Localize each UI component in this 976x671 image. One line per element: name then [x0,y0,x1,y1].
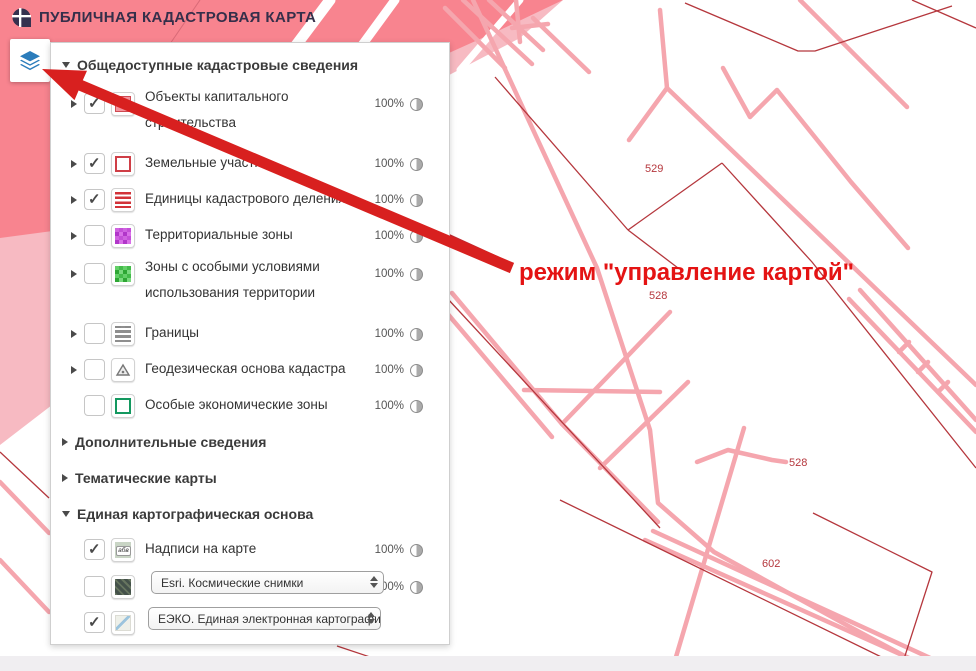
expand-arrow-icon[interactable] [71,366,77,374]
layer-row-cadastral-division: Единицы кадастрового деления 100% [51,182,449,218]
layer-checkbox[interactable] [84,612,105,633]
section-public-cadastral-info[interactable]: Общедоступные кадастровые сведения [51,47,449,83]
layer-checkbox[interactable] [84,189,105,210]
expand-arrow-icon[interactable] [71,232,77,240]
app-title: ПУБЛИЧНАЯ КАДАСТРОВАЯ КАРТА [39,9,316,26]
opacity-value: 100% [375,194,404,206]
basemap-select[interactable]: ЕЭКО. Единая электронная картографичес [148,607,381,630]
basemap-select[interactable]: Esri. Космические снимки [151,571,384,594]
layer-checkbox[interactable] [84,576,105,597]
geodetic-basis-icon [111,358,135,382]
layer-checkbox[interactable] [84,539,105,560]
opacity-toggle-icon[interactable] [410,581,423,594]
opacity-toggle-icon[interactable] [410,400,423,413]
opacity-toggle-icon[interactable] [410,328,423,341]
layer-row-special-conditions-zones: Зоны с особыми условиями использования т… [51,256,449,292]
select-stepper-icon [370,576,378,588]
rosreestr-logo-icon [12,8,31,27]
opacity-value: 100% [375,328,404,340]
opacity-toggle-icon[interactable] [410,544,423,557]
section-additional-info[interactable]: Дополнительные сведения [51,424,449,460]
expand-arrow-icon[interactable] [71,196,77,204]
layer-row-territorial-zones: Территориальные зоны 100% [51,218,449,254]
layer-row-base-map: ЕЭКО. Единая электронная картографичес [51,605,449,641]
layers-icon [17,48,43,74]
layer-checkbox[interactable] [84,93,105,114]
opacity-value: 100% [375,364,404,376]
annotation-text: режим "управление картой" [519,259,854,287]
chevron-down-icon [62,62,70,68]
section-thematic-maps[interactable]: Тематические карты [51,460,449,496]
layer-row-map-labels: абв Надписи на карте 100% [51,532,449,568]
opacity-toggle-icon[interactable] [410,194,423,207]
chevron-right-icon [62,474,68,482]
layers-panel: Общедоступные кадастровые сведения Объек… [50,42,450,645]
land-parcels-icon [111,152,135,176]
layer-row-borders: Границы 100% [51,316,449,352]
construction-objects-icon [111,92,135,116]
expand-arrow-icon[interactable] [71,270,77,278]
opacity-toggle-icon[interactable] [410,98,423,111]
map-labels-icon: абв [111,538,135,562]
chevron-down-icon [62,511,70,517]
special-conditions-zones-icon [111,262,135,286]
special-economic-zones-icon [111,394,135,418]
layer-row-geodetic-basis: Геодезическая основа кадастра 100% [51,352,449,388]
layer-row-satellite-imagery: 100% Esri. Космические снимки [51,569,449,605]
base-map-icon [111,611,135,635]
cadastral-division-icon [111,188,135,212]
cadastral-number-label: 602 [762,558,780,570]
expand-arrow-icon[interactable] [71,330,77,338]
layer-checkbox[interactable] [84,225,105,246]
opacity-value: 100% [375,158,404,170]
cadastral-number-label: 529 [645,163,663,175]
opacity-toggle-icon[interactable] [410,230,423,243]
layer-checkbox[interactable] [84,395,105,416]
expand-arrow-icon[interactable] [71,100,77,108]
cadastral-number-label: 528 [649,290,667,302]
layer-checkbox[interactable] [84,153,105,174]
map-bottom-area [0,656,976,671]
section-unified-cartographic-basis[interactable]: Единая картографическая основа [51,496,449,532]
opacity-value: 100% [375,230,404,242]
opacity-value: 100% [375,400,404,412]
app-header: ПУБЛИЧНАЯ КАДАСТРОВАЯ КАРТА [12,8,316,27]
map-application: 529 528 528 602 ПУБЛИЧНАЯ КАДАСТРОВАЯ КА… [0,0,976,671]
opacity-toggle-icon[interactable] [410,158,423,171]
cadastral-number-label: 528 [789,457,807,469]
layer-row-land-parcels: Земельные участки 100% [51,146,449,182]
layers-mode-button[interactable] [10,39,50,82]
opacity-value: 100% [375,268,404,280]
layer-checkbox[interactable] [84,359,105,380]
layer-checkbox[interactable] [84,263,105,284]
satellite-imagery-icon [111,575,135,599]
layer-checkbox[interactable] [84,323,105,344]
opacity-value: 100% [375,98,404,110]
expand-arrow-icon[interactable] [71,160,77,168]
select-stepper-icon [367,612,375,624]
opacity-value: 100% [375,544,404,556]
chevron-right-icon [62,438,68,446]
borders-icon [111,322,135,346]
opacity-toggle-icon[interactable] [410,364,423,377]
opacity-toggle-icon[interactable] [410,268,423,281]
layer-row-special-economic-zones: Особые экономические зоны 100% [51,388,449,424]
layer-row-construction-objects: Объекты капитального строительства 100% [51,86,449,122]
territorial-zones-icon [111,224,135,248]
